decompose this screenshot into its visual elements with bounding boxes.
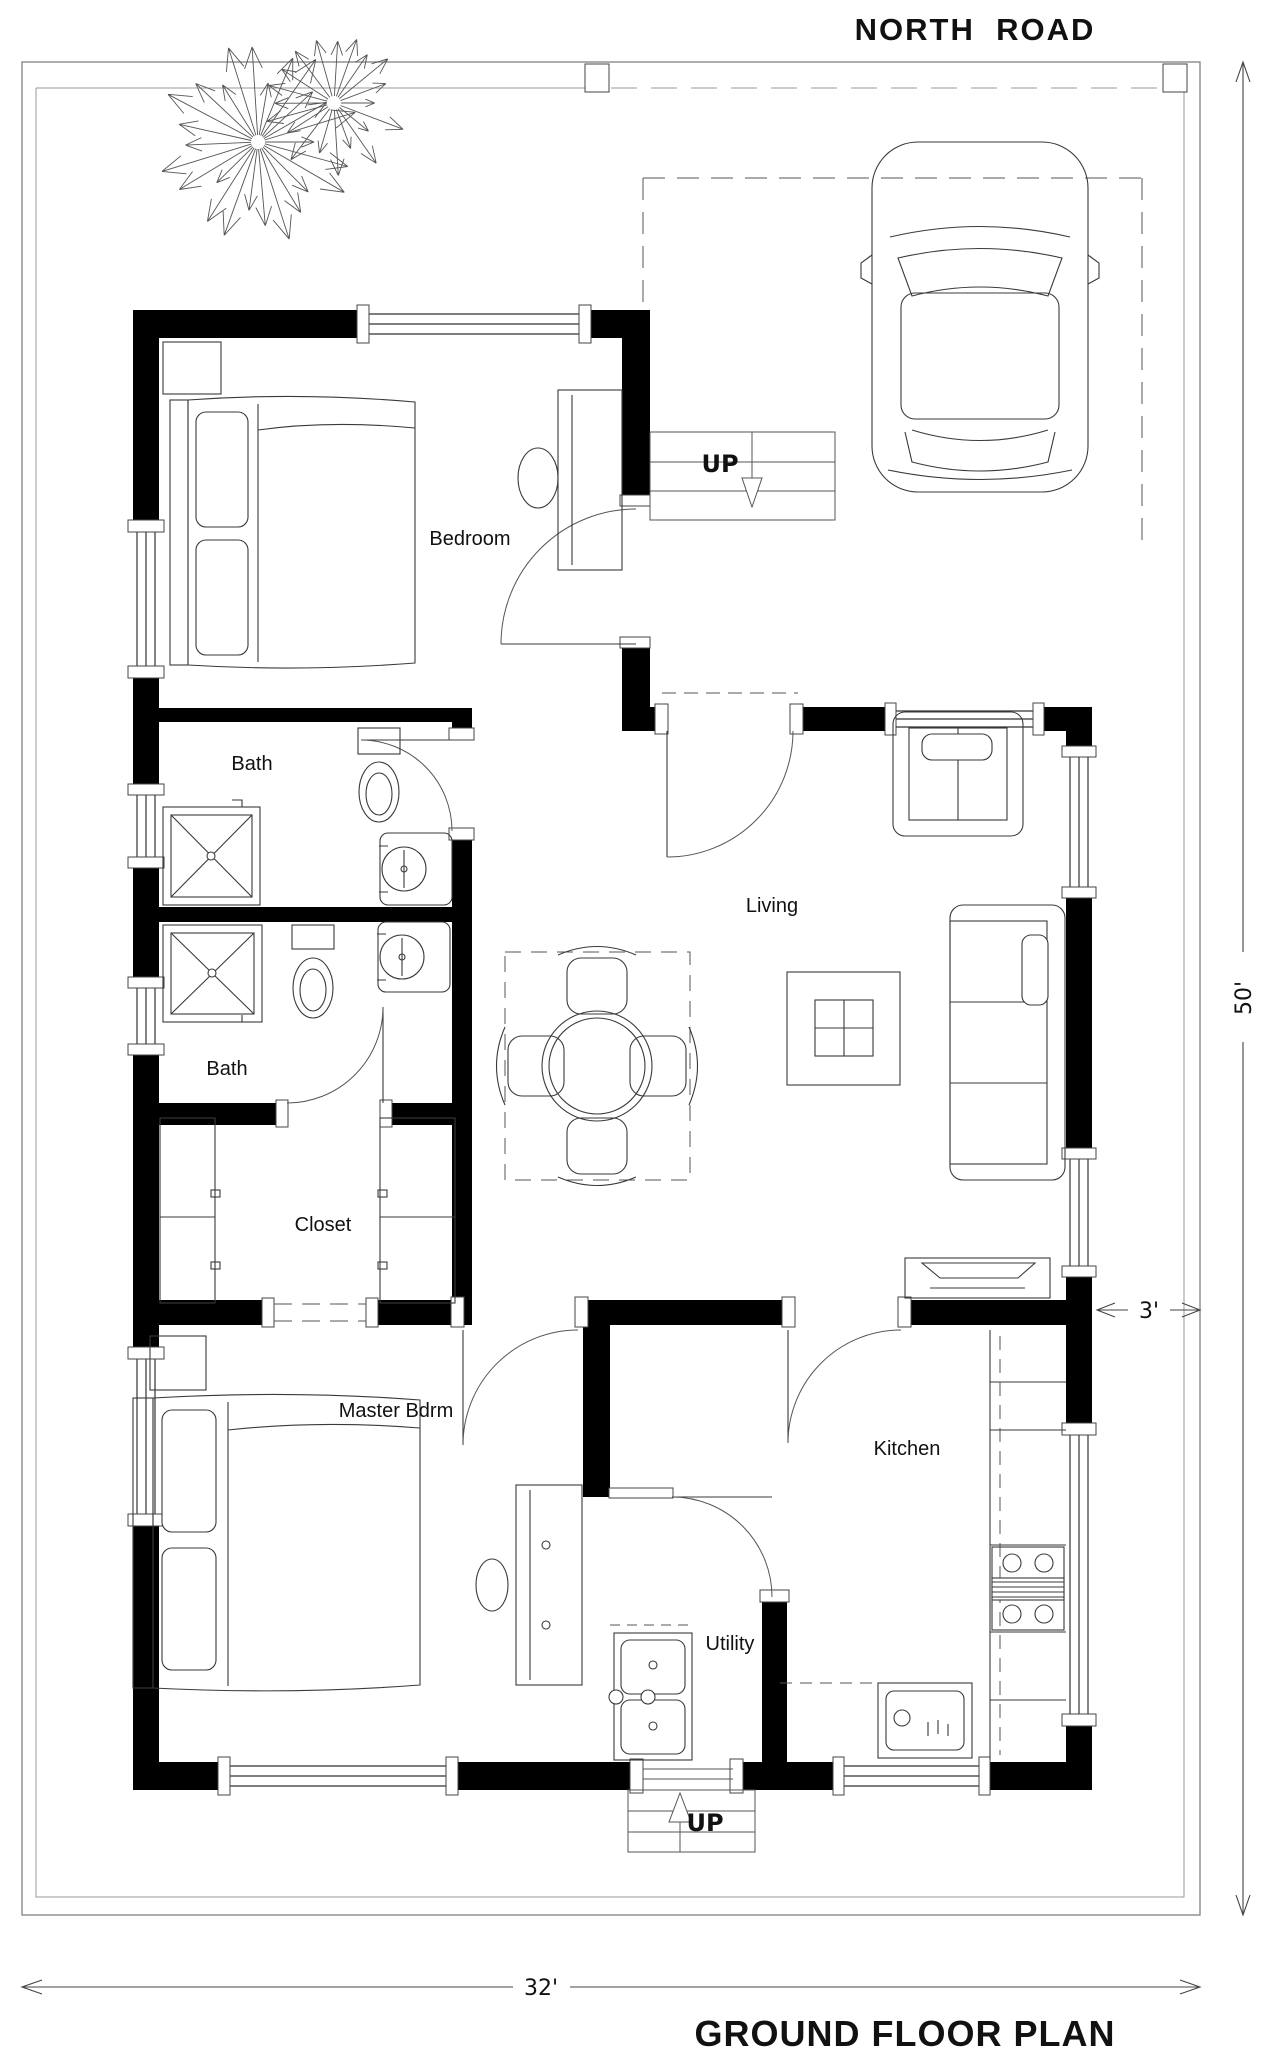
door-bath-lower (276, 1007, 392, 1127)
pillow (162, 1410, 216, 1532)
door-front (655, 693, 803, 857)
toilet-bowl (293, 958, 333, 1018)
master-furniture (133, 1336, 582, 1691)
floor-plan-drawing: 50' 32' 3' NORTH ROAD GROUND FLOOR PLAN … (0, 0, 1280, 2068)
dimension-setback-label: 3' (1139, 1299, 1159, 1324)
window-kitchen-south (833, 1757, 990, 1795)
window-living-east (1062, 746, 1096, 898)
dining-chair-west (497, 1027, 565, 1105)
sofa (950, 905, 1065, 1180)
dimension-width-label: 32' (524, 1976, 558, 2001)
stairs-up-arrow-icon (742, 478, 762, 507)
toilet-tank (292, 925, 334, 949)
dimension-depth-label: 50' (1232, 981, 1257, 1015)
coffee-table (787, 972, 900, 1085)
kitchen-sink (878, 1683, 972, 1758)
pillow (196, 540, 248, 655)
burner (1003, 1554, 1021, 1572)
door-kitchen (782, 1297, 911, 1443)
window-master-south (218, 1757, 458, 1795)
plan-title: GROUND FLOOR PLAN (695, 2013, 1116, 2054)
floor-plan-page: 50' 32' 3' NORTH ROAD GROUND FLOOR PLAN … (0, 0, 1280, 2068)
room-label-bath-lower: Bath (206, 1058, 247, 1080)
desk (558, 390, 622, 570)
dimension-setback: 3' (1097, 1299, 1200, 1324)
dimension-depth: 50' (1232, 62, 1257, 1915)
window-bedroom-north (357, 305, 591, 343)
dining-chair-north (558, 947, 636, 1015)
car-mirror-right (1088, 255, 1099, 284)
room-label-living: Living (746, 895, 798, 917)
room-label-bedroom: Bedroom (429, 528, 510, 550)
vanity (380, 833, 452, 905)
room-label-utility: Utility (706, 1633, 755, 1655)
burner (1035, 1554, 1053, 1572)
desk-chair (518, 448, 558, 508)
dining-set (497, 947, 698, 1186)
opening-closet (262, 1298, 378, 1327)
kitchen-fixtures (780, 1330, 1066, 1760)
gate-post-right (1163, 64, 1187, 92)
car (861, 142, 1099, 492)
stool (476, 1559, 508, 1611)
toilet-bowl (359, 762, 399, 822)
bed-headboard (170, 400, 188, 665)
doors (262, 495, 911, 1793)
living-furniture (497, 712, 1066, 1298)
door-bedroom (501, 495, 650, 648)
car-mirror-left (861, 255, 872, 284)
pillow (196, 412, 248, 527)
utility-double-sink (609, 1633, 692, 1760)
room-label-kitchen: Kitchen (874, 1438, 941, 1460)
road-title: NORTH ROAD (855, 12, 1096, 47)
window-living-east-2 (1062, 1148, 1096, 1277)
blanket-fold (258, 404, 415, 662)
dining-chair-south (558, 1118, 636, 1186)
walls (133, 310, 1092, 1790)
burner (1003, 1605, 1021, 1623)
tree-icon (267, 39, 403, 175)
dining-chair-east (630, 1027, 698, 1105)
tv-console (905, 1258, 1050, 1298)
toilet-tank (358, 728, 400, 754)
room-label-master: Master Bdrm (339, 1400, 453, 1422)
shower-tap (232, 800, 242, 807)
utility-fixtures (609, 1625, 692, 1760)
room-label-bath-upper: Bath (231, 753, 272, 775)
window-bath-upper-west (128, 784, 164, 868)
vanity (378, 922, 450, 992)
pillow (162, 1548, 216, 1670)
window-bath-lower-west (128, 977, 164, 1055)
room-label-closet: Closet (295, 1214, 352, 1236)
bath-lower-fixtures (163, 922, 450, 1022)
bedroom-furniture (163, 342, 622, 668)
stove (992, 1547, 1064, 1630)
carport-outline (643, 178, 1142, 540)
stairs-upper-label: UP (701, 450, 738, 478)
dimension-width: 32' (22, 1976, 1200, 2001)
bath-upper-fixtures (163, 728, 452, 905)
door-back (630, 1759, 743, 1793)
closet-furniture (160, 1118, 455, 1303)
gate-post-left (585, 64, 609, 92)
wardrobe-right (380, 1118, 455, 1303)
burner (1035, 1605, 1053, 1623)
loveseat (893, 712, 1023, 836)
bedside-table (163, 342, 221, 394)
dresser (516, 1485, 582, 1685)
trees (162, 39, 403, 239)
blanket-fold (228, 1402, 420, 1686)
window-bedroom-west (128, 520, 164, 678)
windows (128, 305, 1096, 1795)
stairs-lower-label: UP (686, 1809, 723, 1837)
window-kitchen-east (1062, 1423, 1096, 1726)
door-utility (609, 1488, 789, 1602)
stairs-upper (650, 432, 835, 520)
wardrobe-left (160, 1118, 215, 1303)
door-bath-upper (361, 728, 474, 840)
shower-tap (232, 1015, 242, 1022)
